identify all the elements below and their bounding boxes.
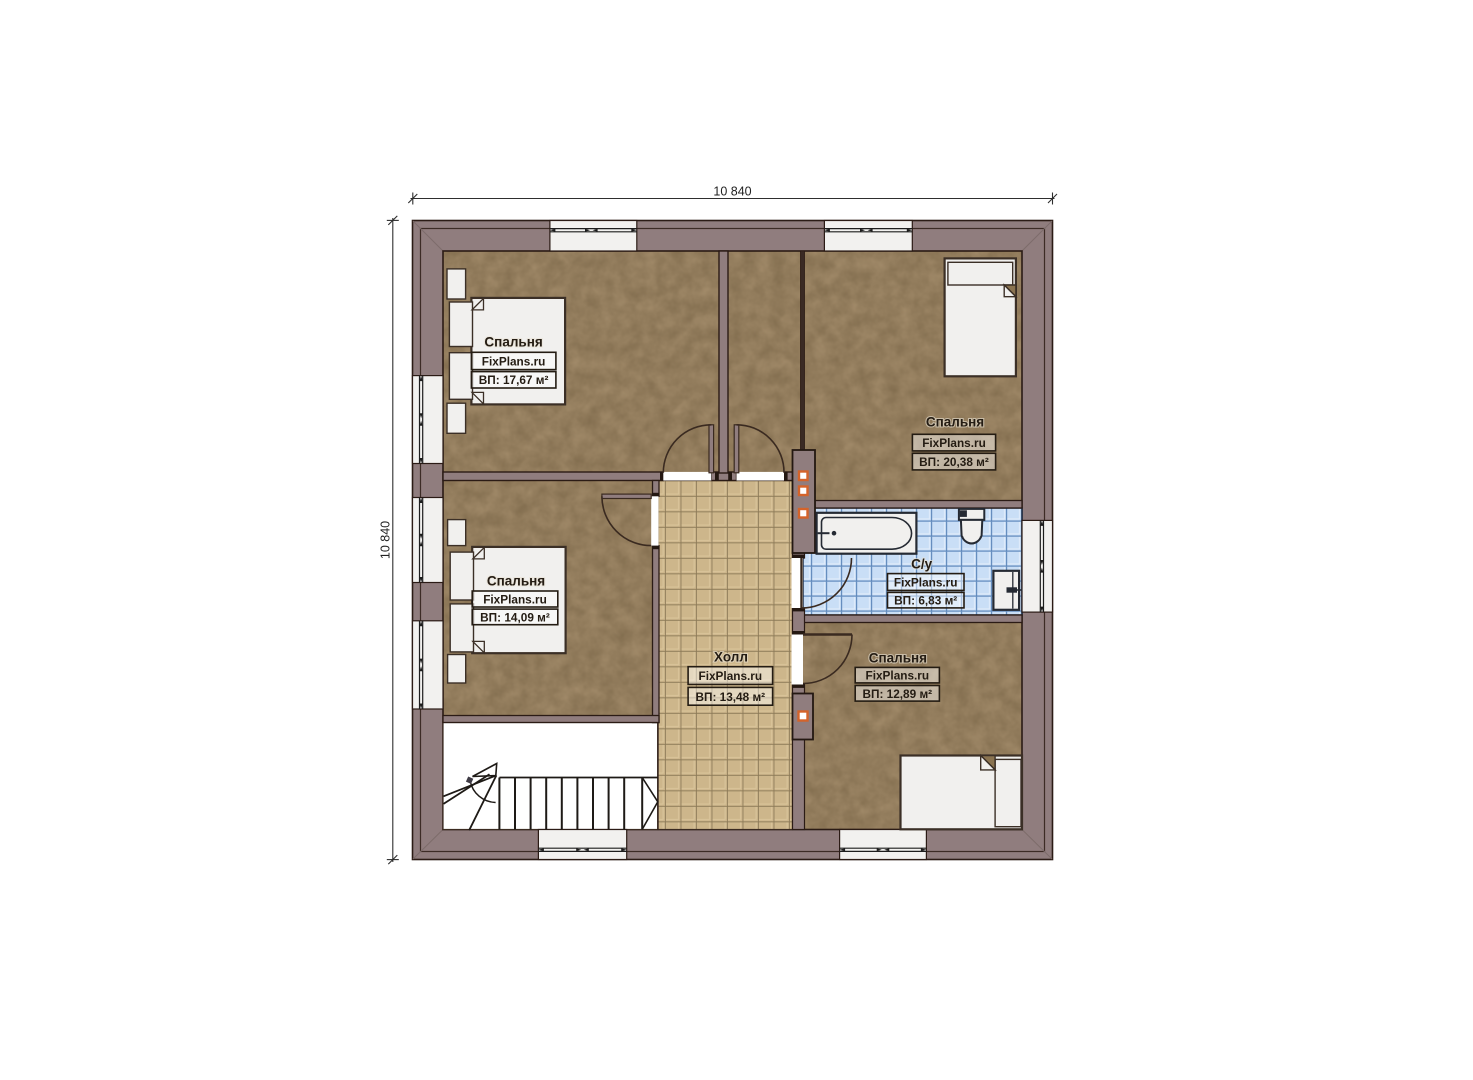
svg-text:ВП: 17,67 м²: ВП: 17,67 м² (479, 373, 549, 387)
svg-text:FixPlans.ru: FixPlans.ru (483, 592, 547, 606)
svg-text:10 840: 10 840 (713, 185, 751, 199)
svg-text:FixPlans.ru: FixPlans.ru (482, 354, 546, 368)
svg-text:ВП: 12,89 м²: ВП: 12,89 м² (862, 687, 932, 701)
svg-text:Спальня: Спальня (869, 650, 927, 665)
svg-text:10 840: 10 840 (379, 521, 393, 559)
svg-text:Спальня: Спальня (926, 415, 984, 430)
svg-text:ВП: 13,48 м²: ВП: 13,48 м² (695, 690, 765, 704)
svg-text:FixPlans.ru: FixPlans.ru (866, 669, 930, 683)
svg-text:ВП: 20,38 м²: ВП: 20,38 м² (919, 455, 989, 469)
svg-text:С/у: С/у (911, 557, 933, 572)
svg-text:ВП: 14,09 м²: ВП: 14,09 м² (480, 611, 550, 625)
svg-text:Спальня: Спальня (487, 573, 545, 588)
svg-text:Спальня: Спальня (484, 335, 542, 350)
svg-text:FixPlans.ru: FixPlans.ru (699, 669, 763, 683)
svg-text:Холл: Холл (714, 650, 748, 665)
svg-text:FixPlans.ru: FixPlans.ru (922, 436, 986, 450)
svg-text:ВП: 6,83 м²: ВП: 6,83 м² (894, 594, 957, 608)
svg-text:FixPlans.ru: FixPlans.ru (894, 576, 958, 590)
